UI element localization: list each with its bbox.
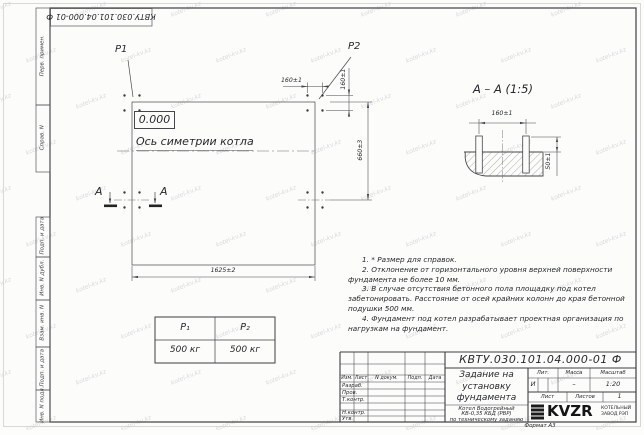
dim-160-horizontal: 160±1 — [281, 78, 302, 84]
mass-label: Масса — [558, 371, 590, 376]
load-table-value-p2: 500 кг — [215, 346, 275, 355]
format-label: Формат А3 — [505, 424, 575, 430]
plan-dimensions — [114, 68, 372, 281]
lit-value: И — [528, 381, 538, 388]
notes-block: 1. * Размер для справок. 2. Отклонение о… — [348, 255, 640, 333]
drawing-sheet: kotel-kv.kzkotel-kv.kzkotel-kv.kzkotel-k… — [0, 0, 644, 430]
load-point-p2-label: P2 — [348, 42, 360, 52]
note-2: 2. Отклонение от горизонтального уровня … — [348, 265, 640, 285]
doc-title-line-2: установку — [445, 383, 528, 392]
doc-title-line-1: Задание на — [445, 371, 528, 380]
load-table-header-p2: P₂ — [215, 323, 275, 333]
note-1: 1. * Размер для справок. — [348, 255, 640, 265]
col-ndoc: N докум. — [368, 376, 405, 381]
note-3: 3. В случае отсутствия бетонного пола пл… — [348, 284, 640, 313]
frame-label-inv-podl: Инв. N подл. — [40, 375, 46, 435]
sheets-label: Листов — [567, 395, 603, 400]
row-tkontr: Т.контр. — [342, 398, 365, 403]
section-cut-marks — [104, 192, 162, 207]
load-table-header-p1: P₁ — [155, 323, 215, 333]
section-title: А – А (1:5) — [453, 84, 553, 96]
mass-value: – — [558, 381, 590, 388]
col-list: Лист — [354, 376, 368, 381]
dim-1625: 1625±2 — [193, 268, 253, 274]
scale-label: Масштаб — [590, 371, 636, 376]
dim-160-vertical: 160±1 — [340, 59, 346, 99]
col-podp: Подп. — [405, 376, 425, 381]
doc-title-line-3: фундамента — [445, 394, 528, 403]
sheets-value: 1 — [603, 394, 636, 400]
plan-view — [117, 57, 351, 265]
logo-caption-2: ЗАВОД РЭП — [601, 413, 628, 418]
frame-label-perv-primen: Перв. примен. — [40, 25, 46, 85]
sheet-label: Лист — [528, 395, 567, 400]
dim-660: 660±3 — [358, 130, 364, 170]
section-letter-right: А — [160, 186, 168, 197]
col-data: Дата — [425, 376, 445, 381]
elevation-mark: 0.000 — [134, 111, 175, 129]
col-izm: Изм. — [340, 376, 354, 381]
symmetry-axis-label: Ось симетрии котла — [136, 136, 254, 147]
kvzr-logo-text: KVZR — [547, 404, 593, 419]
logo-caption-1: КОТЕЛЬНЫЙ — [601, 407, 631, 412]
titleblock-designation: КВТУ.030.101.04.000-01 Ф — [445, 354, 636, 365]
load-point-p1-label: P1 — [115, 45, 127, 55]
kvzr-logo-icon — [531, 405, 544, 420]
frame-label-sprav-n: Справ. N — [40, 107, 46, 167]
load-table-value-p1: 500 кг — [155, 346, 215, 355]
row-razrab: Разраб. — [342, 384, 363, 389]
lit-label: Лит. — [528, 371, 558, 376]
section-dim-160: 160±1 — [472, 111, 532, 117]
top-designation: КВТУ.030.101.04.000-01 Ф — [41, 12, 161, 20]
doc-desc-line-3: по техническому заданию — [445, 418, 528, 423]
row-prov: Пров. — [342, 391, 357, 396]
row-utv: Утв. — [342, 417, 353, 422]
section-letter-left: А — [95, 186, 103, 197]
note-4: 4. Фундамент под котел разрабатывает про… — [348, 314, 640, 334]
section-dim-50: 50±1 — [546, 141, 552, 181]
scale-value: 1:20 — [590, 381, 636, 388]
